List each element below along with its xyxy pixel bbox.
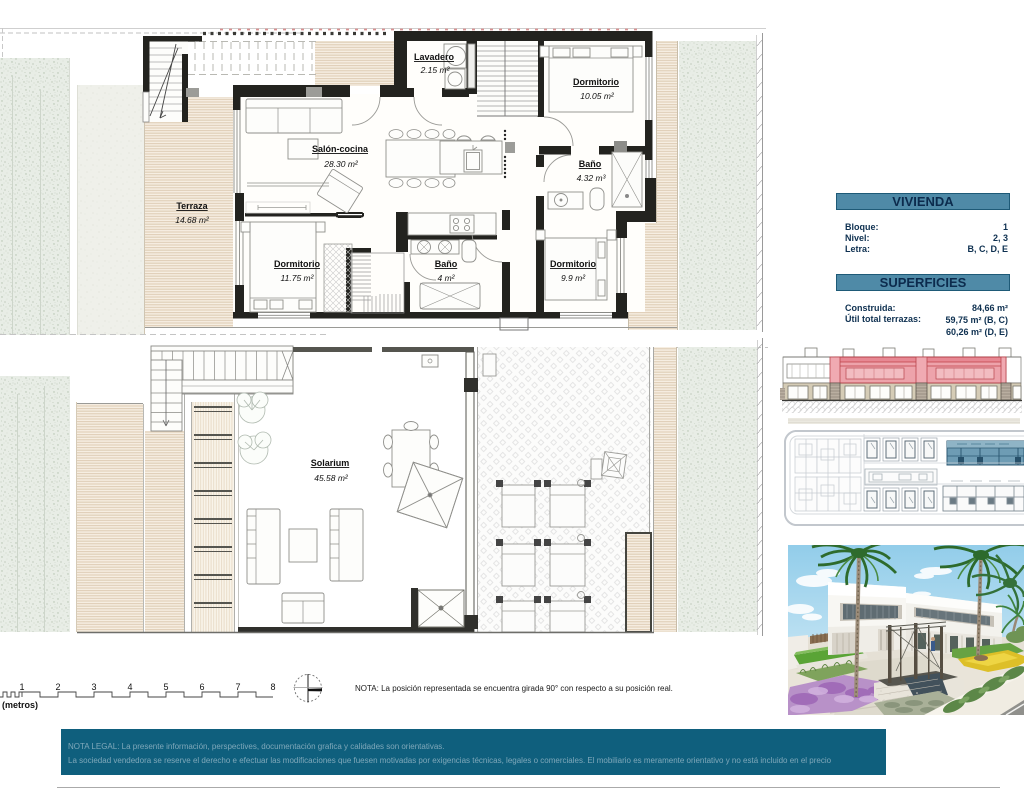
svg-text:4.32 m³: 4.32 m³ [577,173,607,183]
svg-text:Dormitorio: Dormitorio [550,259,597,269]
svg-text:45.58 m²: 45.58 m² [314,473,349,483]
svg-text:9.9 m²: 9.9 m² [561,273,586,283]
svg-text:5: 5 [163,682,168,692]
svg-text:7: 7 [235,682,240,692]
svg-text:Terraza: Terraza [176,201,208,211]
svg-text:14.68 m²: 14.68 m² [175,215,210,225]
svg-text:(metros): (metros) [2,700,38,710]
svg-text:10.05 m²: 10.05 m² [580,91,615,101]
svg-text:Solarium: Solarium [311,458,350,468]
svg-text:Dormitorio: Dormitorio [274,259,321,269]
svg-text:1: 1 [19,682,24,692]
svg-text:4 m²: 4 m² [438,273,456,283]
svg-text:Baño: Baño [435,259,458,269]
svg-text:2.15 m²: 2.15 m² [420,65,451,75]
svg-text:3: 3 [91,682,96,692]
svg-text:11.75 m²: 11.75 m² [281,273,315,283]
svg-text:Lavadero: Lavadero [414,52,455,62]
svg-text:6: 6 [199,682,204,692]
svg-text:2: 2 [55,682,60,692]
svg-text:4: 4 [127,682,132,692]
svg-text:28.30 m²: 28.30 m² [323,159,359,169]
svg-text:Baño: Baño [579,159,602,169]
svg-text:Salón-cocina: Salón-cocina [312,144,369,154]
svg-text:Dormitorio: Dormitorio [573,77,620,87]
svg-text:8: 8 [270,682,275,692]
